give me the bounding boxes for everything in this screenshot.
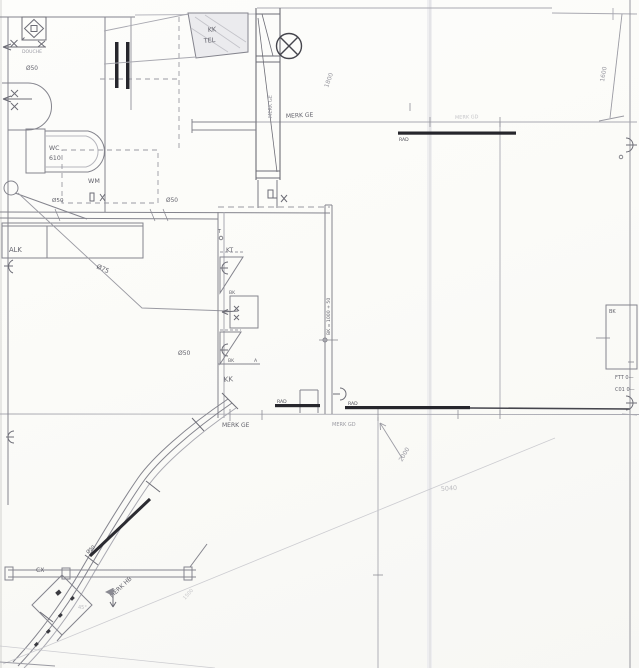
radiator-bar: [398, 132, 516, 135]
bk1-label: BK: [229, 290, 236, 296]
pipe-run-75: [18, 193, 229, 311]
bk-box-label: BK: [609, 309, 616, 315]
rad1-label: RAD: [277, 399, 287, 405]
pipe-dia75-label: Ø75: [95, 263, 110, 276]
lintel: [192, 119, 256, 133]
co1-label: C01 0—: [615, 387, 635, 393]
dim-2000-label: 2000: [398, 446, 412, 463]
datum-ticks: [8, 103, 500, 575]
hinge-icon: [333, 388, 346, 400]
door-icon: [90, 193, 105, 201]
pipe-riser-bar: [115, 42, 119, 88]
drain-arrow-mid-icon: [3, 90, 32, 110]
kt-label: KT: [226, 247, 233, 254]
wc-label: WC: [49, 145, 59, 152]
door-icon: [268, 190, 287, 202]
wm-dia-label: Ø50: [166, 197, 178, 204]
edge-line: [0, 662, 55, 666]
datum-lines: [0, 0, 639, 668]
hinge-icon: [6, 431, 14, 443]
merk-gd-mid-label: MERK GD: [332, 422, 356, 428]
mullions: [34, 590, 75, 647]
leader-1600-tick: [599, 116, 624, 121]
bk-note-label: BK = 1000 + 50: [326, 298, 332, 335]
floor-plan-canvas: DOUCHE Ø50 WC 610 WM Ø50 KK TEL: [0, 0, 639, 668]
pipe-riser-bar: [126, 42, 130, 89]
radiator-line: [470, 408, 630, 409]
rad2-label: RAD: [348, 401, 358, 407]
merk-ge-vertical-label: MERK GE: [268, 95, 274, 118]
wall-horizontal: [0, 207, 330, 221]
hinge-icon: [619, 138, 637, 159]
stub-column: [300, 390, 318, 413]
right-bk-area: BK FTT 0— C01 0—: [596, 305, 637, 410]
merk-ge-label: MERK GE: [286, 112, 314, 120]
wc-num-label: 610: [49, 155, 61, 162]
hinge-icon: [220, 262, 228, 274]
merk-ge-mid-label: MERK GE: [222, 422, 250, 429]
dim-1800-label: 1800: [323, 72, 335, 89]
merk-gd-top-label: MERK GD: [455, 114, 479, 121]
kktel-box: [188, 13, 248, 58]
wm-label: WM: [88, 177, 100, 185]
toilet-fixture: [26, 129, 104, 173]
drain-arrow-top-icon: [3, 40, 46, 50]
hinge-icon: [626, 396, 637, 410]
alk-label: ALK: [9, 246, 22, 254]
scan-edge: [0, 0, 2, 668]
dia50-diag-label: Ø50: [85, 544, 97, 556]
mid-radiators: RAD RAD MERK GE MERK GD 2000 5040: [222, 399, 630, 493]
top-right-area: 1600 RAD MERK GD: [398, 14, 637, 159]
bk2-label: BK: [228, 358, 235, 364]
radiator-bar: [345, 406, 470, 409]
leader-2000: [380, 423, 402, 458]
dashed-partitions: [62, 17, 179, 203]
scan-band: [427, 0, 432, 668]
cx-label: CX: [36, 567, 44, 574]
door-swing-icon: [4, 181, 87, 219]
wall-dia50-label: Ø50: [52, 197, 64, 204]
floor-plan-scan: DOUCHE Ø50 WC 610 WM Ø50 KK TEL: [0, 0, 639, 668]
center-wall: BK = 1000 + 50: [300, 205, 346, 414]
mid-left-area: ALK Ø75 Ø50: [0, 190, 330, 311]
deg45-label: 45°: [78, 605, 87, 611]
douche-label: DOUCHE: [22, 49, 42, 55]
cupboard-column: T KT BK BK A KK Ø50: [178, 212, 260, 418]
rad-top-label: RAD: [399, 137, 409, 143]
douche-dia-label: Ø50: [26, 65, 38, 72]
bk-cupboard: [230, 296, 258, 328]
kk-label: KK: [207, 25, 217, 34]
kk-cab-label: KK: [223, 375, 233, 384]
kktel-area: KK TEL MERK GE MERK GE: [104, 8, 335, 208]
leader-1600: [610, 14, 622, 118]
kk-dia50-label: Ø50: [178, 350, 191, 357]
kt-cupboard: [220, 257, 243, 293]
a-mark-label: A: [254, 358, 258, 364]
tel-label: TEL: [202, 36, 216, 45]
dim-5040-label: 5040: [441, 484, 458, 493]
alk-counter: [2, 223, 143, 258]
t-mark-dot: [219, 236, 223, 240]
t-mark-label: T: [217, 229, 222, 235]
floor-drain-icon: [22, 17, 46, 40]
curved-wall: Ø50 MERK HB 1500 45°: [0, 393, 555, 668]
ftt-label: FTT 0—: [615, 375, 634, 381]
bench: [5, 544, 207, 580]
radiator-bar-diagonal: [90, 499, 150, 556]
dim-1600-label: 1600: [599, 66, 609, 82]
merk-hb-label: MERK HB: [109, 576, 134, 600]
